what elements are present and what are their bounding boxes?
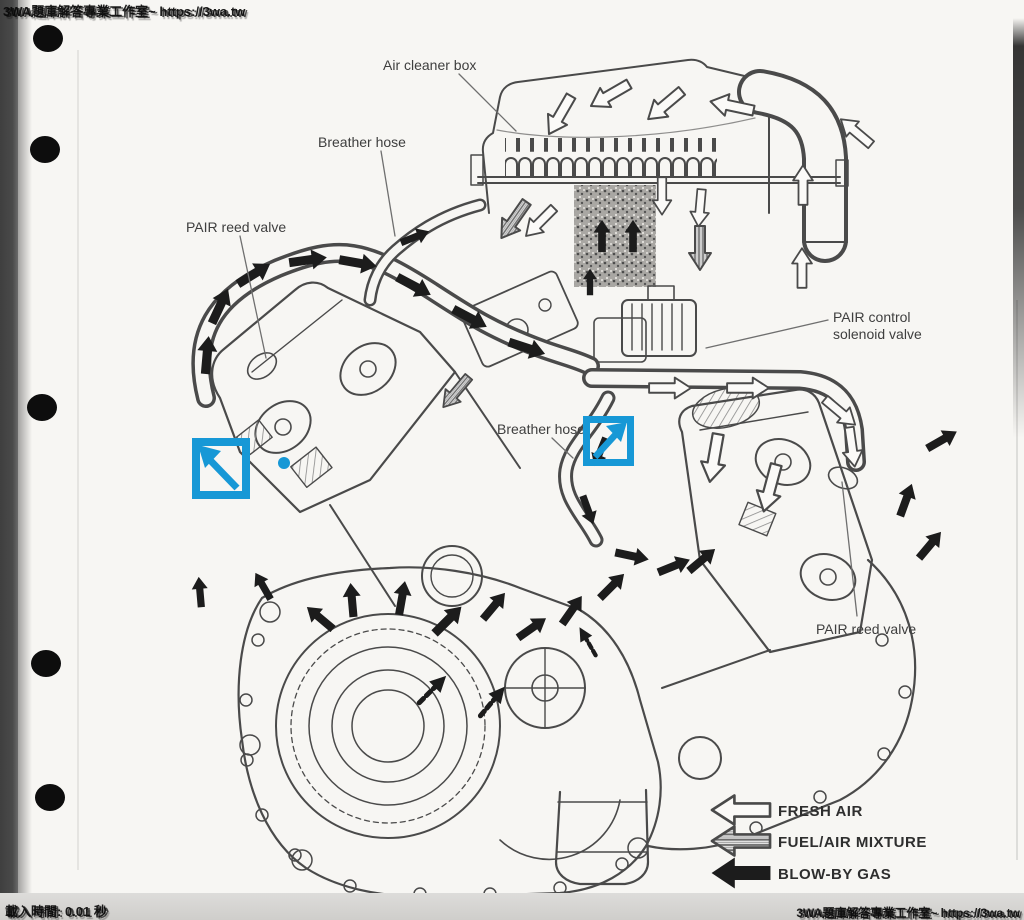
engine-diagram: Air cleaner box Breather hose PAIR reed … <box>0 0 1024 920</box>
page-edge-line <box>1016 300 1018 860</box>
legend-label-blow-by: BLOW-BY GAS <box>778 866 891 883</box>
annotation-arrow-box-right <box>583 416 634 466</box>
legend-fresh-air-arrow <box>712 795 770 824</box>
label-breather-hose-top: Breather hose <box>318 134 406 150</box>
legend-label-fuel-air: FUEL/AIR MIXTURE <box>778 834 927 851</box>
filter-media-stipple <box>574 185 656 287</box>
legend-blow-by-arrow <box>712 858 771 889</box>
label-pair-control-line2: solenoid valve <box>833 326 922 342</box>
page-crease <box>77 50 79 870</box>
annotation-arrow-box-left <box>192 438 250 499</box>
label-pair-control-line1: PAIR control <box>833 309 911 325</box>
spine-shadow <box>18 0 32 893</box>
watermark-top: 3WA題庫解答專業工作室~ https://3wa.tw <box>3 1 245 20</box>
pair-solenoid <box>622 286 696 356</box>
label-pair-reed-valve-right: PAIR reed valve <box>816 621 916 637</box>
binder-hole <box>33 25 63 52</box>
label-pair-reed-valve-left: PAIR reed valve <box>186 219 286 235</box>
scanned-manual-page: Air cleaner box Breather hose PAIR reed … <box>0 0 1024 920</box>
binder-spine-strip <box>0 0 18 893</box>
label-breather-hose-mid: Breather hose <box>497 421 585 437</box>
filter-element <box>505 138 717 176</box>
watermark-bottom: 3WA題庫解答專業工作室~ https://3wa.tw <box>796 904 1020 920</box>
binder-hole <box>27 394 57 421</box>
page-edge-shadow <box>1013 18 1024 438</box>
flow-legend: FRESH AIR FUEL/AIR MIXTURE BLOW-BY GAS <box>712 795 927 888</box>
legend-label-fresh-air: FRESH AIR <box>778 803 863 820</box>
binder-hole <box>31 650 61 677</box>
binder-hole <box>35 784 65 811</box>
label-air-cleaner-box: Air cleaner box <box>383 57 476 73</box>
load-time-text: 載入時間: 0.01 秒 <box>5 901 107 920</box>
annotation-dot <box>278 457 290 469</box>
binder-hole <box>30 136 60 163</box>
